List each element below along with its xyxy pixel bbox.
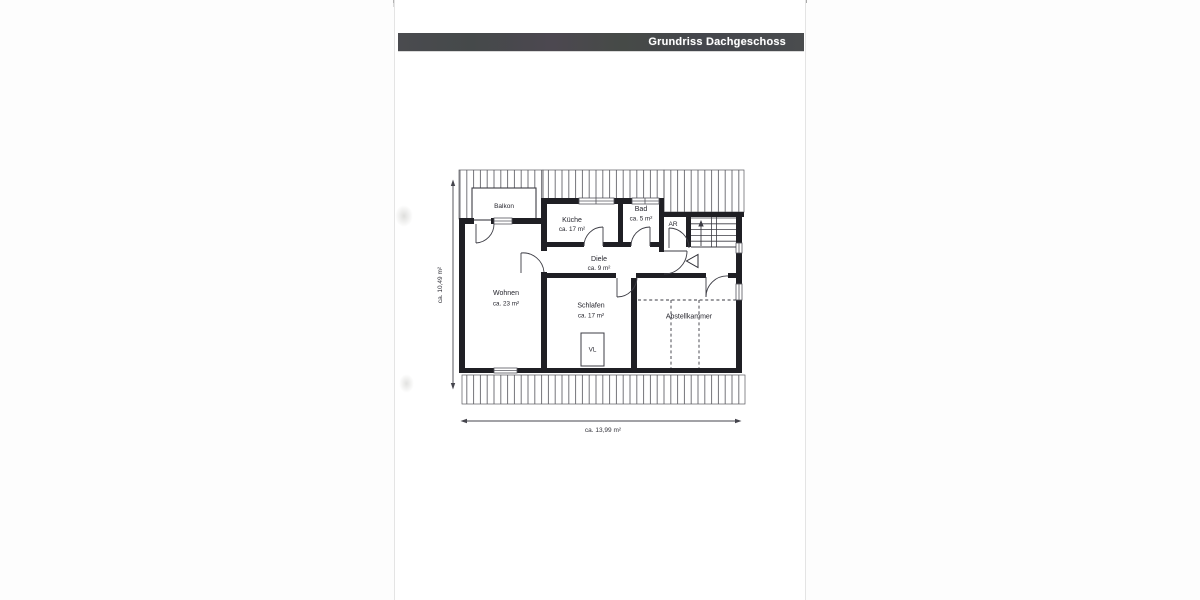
window-right-lower [736, 284, 742, 300]
window-bad [632, 198, 659, 204]
room-label-wohnen: Wohnen [493, 290, 519, 297]
room-label-ar: AR [668, 221, 677, 228]
window-wohnen-south [494, 368, 517, 373]
room-label-kueche: Küche [562, 217, 582, 224]
dimension-width-label: ca. 13,99 m² [585, 427, 622, 434]
room-label-balkon: Balkon [494, 203, 514, 210]
floorplan-drawing: Balkon [395, 0, 807, 600]
window-balkon-wall [494, 218, 512, 224]
scanned-document: Grundriss Dachgeschoss Balk [0, 0, 1200, 600]
vl-box: VL [581, 333, 604, 366]
room-area-diele: ca. 9 m² [588, 265, 611, 272]
room-area-kueche: ca. 17 m² [559, 226, 585, 233]
dimension-height-label: ca. 10,49 m² [437, 266, 444, 303]
dimension-width: ca. 13,99 m² [461, 419, 742, 434]
room-area-bad: ca. 5 m² [630, 216, 653, 223]
window-kueche [579, 198, 614, 204]
room-label-diele: Diele [591, 256, 607, 263]
roof-hatch-bottom [462, 375, 745, 404]
dimension-height: ca. 10,49 m² [437, 180, 455, 390]
vl-label: VL [589, 347, 597, 354]
room-label-abstellkammer: Abstellkammer [666, 314, 713, 321]
room-label-schlafen: Schlafen [577, 303, 604, 310]
window-right-upper [736, 243, 742, 253]
document-page: Grundriss Dachgeschoss Balk [394, 0, 806, 600]
room-area-schlafen: ca. 17 m² [578, 313, 604, 320]
room-area-wohnen: ca. 23 m² [493, 301, 519, 308]
room-balkon: Balkon [472, 188, 536, 220]
room-label-bad: Bad [635, 206, 648, 213]
